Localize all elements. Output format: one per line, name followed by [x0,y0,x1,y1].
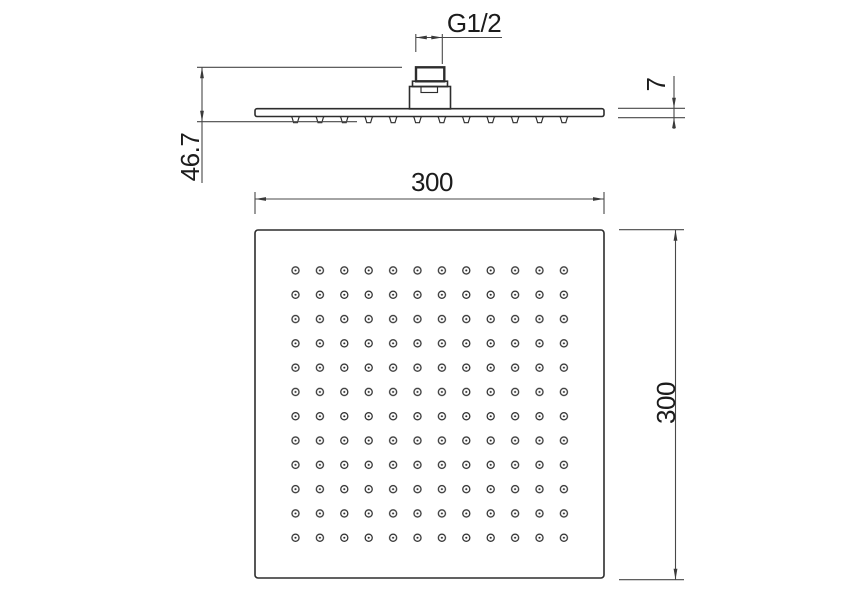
arrow-left-icon [255,197,266,201]
connector-base [410,87,451,109]
face-view: 300 300 [255,167,684,580]
width-value-label: 300 [411,167,453,197]
height-value-label: 46.7 [175,133,205,182]
dimension-thickness: 7 [618,76,685,129]
thickness-value-label: 7 [641,77,671,91]
arrow-up-icon [672,118,676,129]
dimension-depth: 300 [619,230,684,580]
arrow-up-icon [200,67,204,78]
arrow-down-icon [672,98,676,109]
thread-pipe [416,67,444,81]
arrow-down-icon [674,569,678,580]
side-view: G1/2 46.7 7 [175,8,685,183]
plate-profile [255,109,604,117]
depth-value-label: 300 [651,382,681,424]
arrow-left-icon [416,36,427,40]
thread-size-label: G1/2 [447,8,501,38]
thread-connector [410,67,451,109]
face-nozzle-grid [283,258,576,550]
arrow-right-icon [431,36,442,40]
connector-notch [421,87,438,93]
dimension-thread: G1/2 [416,8,502,64]
arrow-down-icon [200,111,204,122]
shower-head-technical-drawing: G1/2 46.7 7 [0,0,866,613]
arrow-right-icon [593,197,604,201]
technical-drawing-page: G1/2 46.7 7 [0,0,866,613]
arrow-up-icon [674,230,678,241]
dimension-height: 46.7 [175,67,402,183]
dimension-width: 300 [255,167,604,214]
